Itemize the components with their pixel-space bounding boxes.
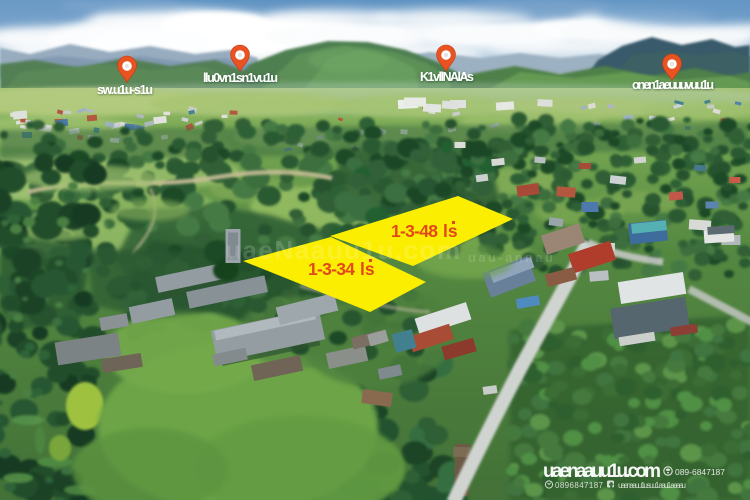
- svg-text:089-6847187: 089-6847187: [675, 467, 725, 477]
- svg-text:uaenaauu1u.com: uaenaauu1u.com: [543, 461, 661, 482]
- svg-text:uau-annau: uau-annau: [468, 250, 553, 265]
- svg-text:onen1aeuuuvuu1u: onen1aeuuuvuu1u: [632, 78, 714, 92]
- svg-text:0896847187: 0896847187: [555, 481, 604, 490]
- svg-text:uaenaauu1u suu1 aau1 aaaau: uaenaauu1u suu1 aau1 aaaau: [618, 481, 686, 490]
- svg-text:sw.u1u-s1u: sw.u1u-s1u: [97, 83, 153, 97]
- svg-text:K1vllNAlAs: K1vllNAlAs: [420, 70, 474, 84]
- svg-text:llu0vn1sn1vu1u: llu0vn1sn1vu1u: [203, 71, 278, 85]
